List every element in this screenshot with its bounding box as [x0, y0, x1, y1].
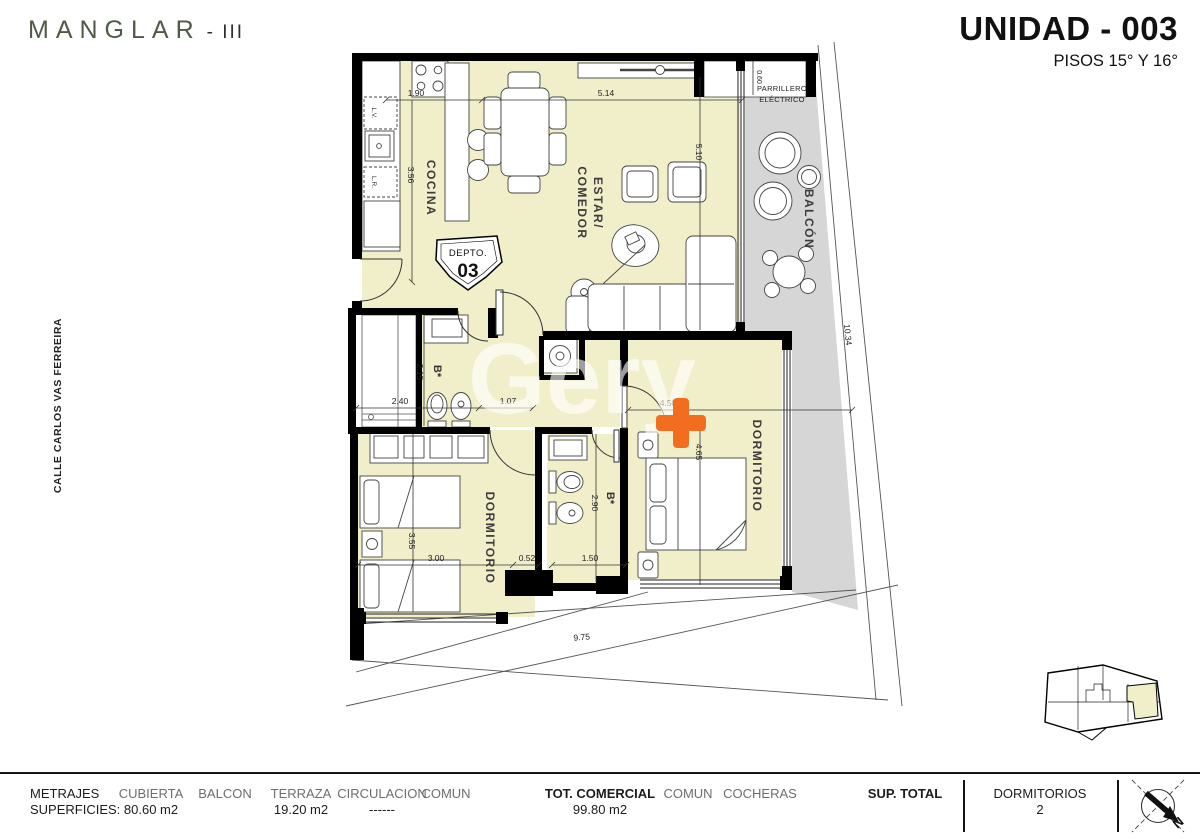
washer — [543, 339, 577, 373]
badge-unit-number: 03 — [457, 261, 478, 282]
balcony-table-icon — [773, 256, 805, 288]
dim-kitchen-w: 1.90 — [408, 88, 425, 98]
footer-comun-1: COMUN — [421, 786, 470, 802]
footer-balcon: BALCON — [198, 786, 251, 802]
laundry-label: L.R. — [370, 176, 377, 188]
closet — [362, 315, 416, 427]
dim-kitchen-d: 3.56 — [406, 167, 416, 184]
circulacion-value: ------ — [337, 802, 427, 818]
metrajes-label: METRAJES — [30, 786, 120, 802]
floorplan-drawing: L.V. L.R. — [0, 0, 1200, 839]
grill-label-1: PARRILLERO — [757, 84, 807, 93]
room-bath2: B* — [604, 492, 616, 505]
dim-living-w: 5.14 — [598, 88, 615, 98]
dim-grill: 0.60 — [755, 70, 762, 84]
dishwasher-label: L.V. — [370, 108, 377, 119]
balcony-chair-icon — [765, 283, 780, 298]
dishwasher-icon — [364, 97, 397, 129]
key-plan — [1045, 665, 1162, 740]
laundry-machine-icon — [364, 167, 397, 197]
compass-icon: N — [1132, 780, 1187, 832]
kitchen-island — [445, 63, 469, 221]
terraza-value: 19.20 m2 — [271, 802, 332, 818]
footer-cubierta: CUBIERTA 80.60 m2 — [119, 786, 184, 818]
room-living-1: ESTAR/ — [591, 177, 605, 229]
footer-tot-comercial: TOT. COMERCIAL 99.80 m2 — [545, 786, 655, 818]
room-bedroom1: DORMITORIO — [750, 420, 764, 513]
floorplan-sheet: MANGLAR - III UNIDAD - 003 PISOS 15° Y 1… — [0, 0, 1200, 839]
footer-separator — [963, 780, 965, 832]
footer-sup-total: SUP. TOTAL — [868, 786, 942, 802]
badge-depto-label: DEPTO. — [449, 248, 487, 259]
footer-dormitorios: DORMITORIOS 2 — [994, 786, 1087, 818]
dim-step: 0.52 — [519, 553, 536, 563]
dim-bed2-w: 3.00 — [428, 553, 445, 563]
dim-hall: 1.07 — [500, 396, 517, 406]
dim-bath1: 2.15 — [415, 364, 425, 381]
room-balcony: BALCÓN — [802, 189, 817, 249]
fridge-icon — [364, 201, 400, 247]
watermark-logo-icon — [650, 393, 720, 463]
room-bath1: B* — [431, 365, 443, 378]
footer-terraza: TERRAZA 19.20 m2 — [271, 786, 332, 818]
grill-label-2: ELÉCTRICO — [759, 95, 805, 104]
sofa-armrest — [566, 296, 590, 334]
footer-comun-2: COMUN — [663, 786, 712, 802]
dim-bath2-w: 1.50 — [582, 553, 599, 563]
tot-comercial-value: 99.80 m2 — [545, 802, 655, 818]
footer-divider-rule — [0, 772, 1200, 774]
footer-cocheras: COCHERAS — [723, 786, 797, 802]
footer-circulacion: CIRCULACION ------ — [337, 786, 427, 818]
dim-closet: 2.40 — [392, 396, 409, 406]
bath2-fixtures — [549, 436, 587, 524]
dim-balcony: 10.34 — [842, 324, 854, 346]
footer-separator — [1117, 780, 1119, 832]
dim-bed2-d: 3.55 — [407, 533, 417, 550]
superficies-label: SUPERFICIES: — [30, 802, 120, 818]
footer-metrajes: METRAJES SUPERFICIES: — [30, 786, 120, 818]
room-living-2: COMEDOR — [575, 166, 589, 239]
dining-table — [501, 88, 549, 176]
cubierta-value: 80.60 m2 — [119, 802, 184, 818]
dim-bath2-d: 2.90 — [590, 495, 600, 512]
dim-living-d: 5.10 — [694, 144, 704, 161]
dormitorios-value: 2 — [994, 802, 1087, 818]
room-bedroom2: DORMITORIO — [483, 492, 497, 585]
room-kitchen: COCINA — [424, 160, 438, 216]
dim-front: 9.75 — [573, 631, 591, 642]
sofa — [588, 284, 700, 332]
